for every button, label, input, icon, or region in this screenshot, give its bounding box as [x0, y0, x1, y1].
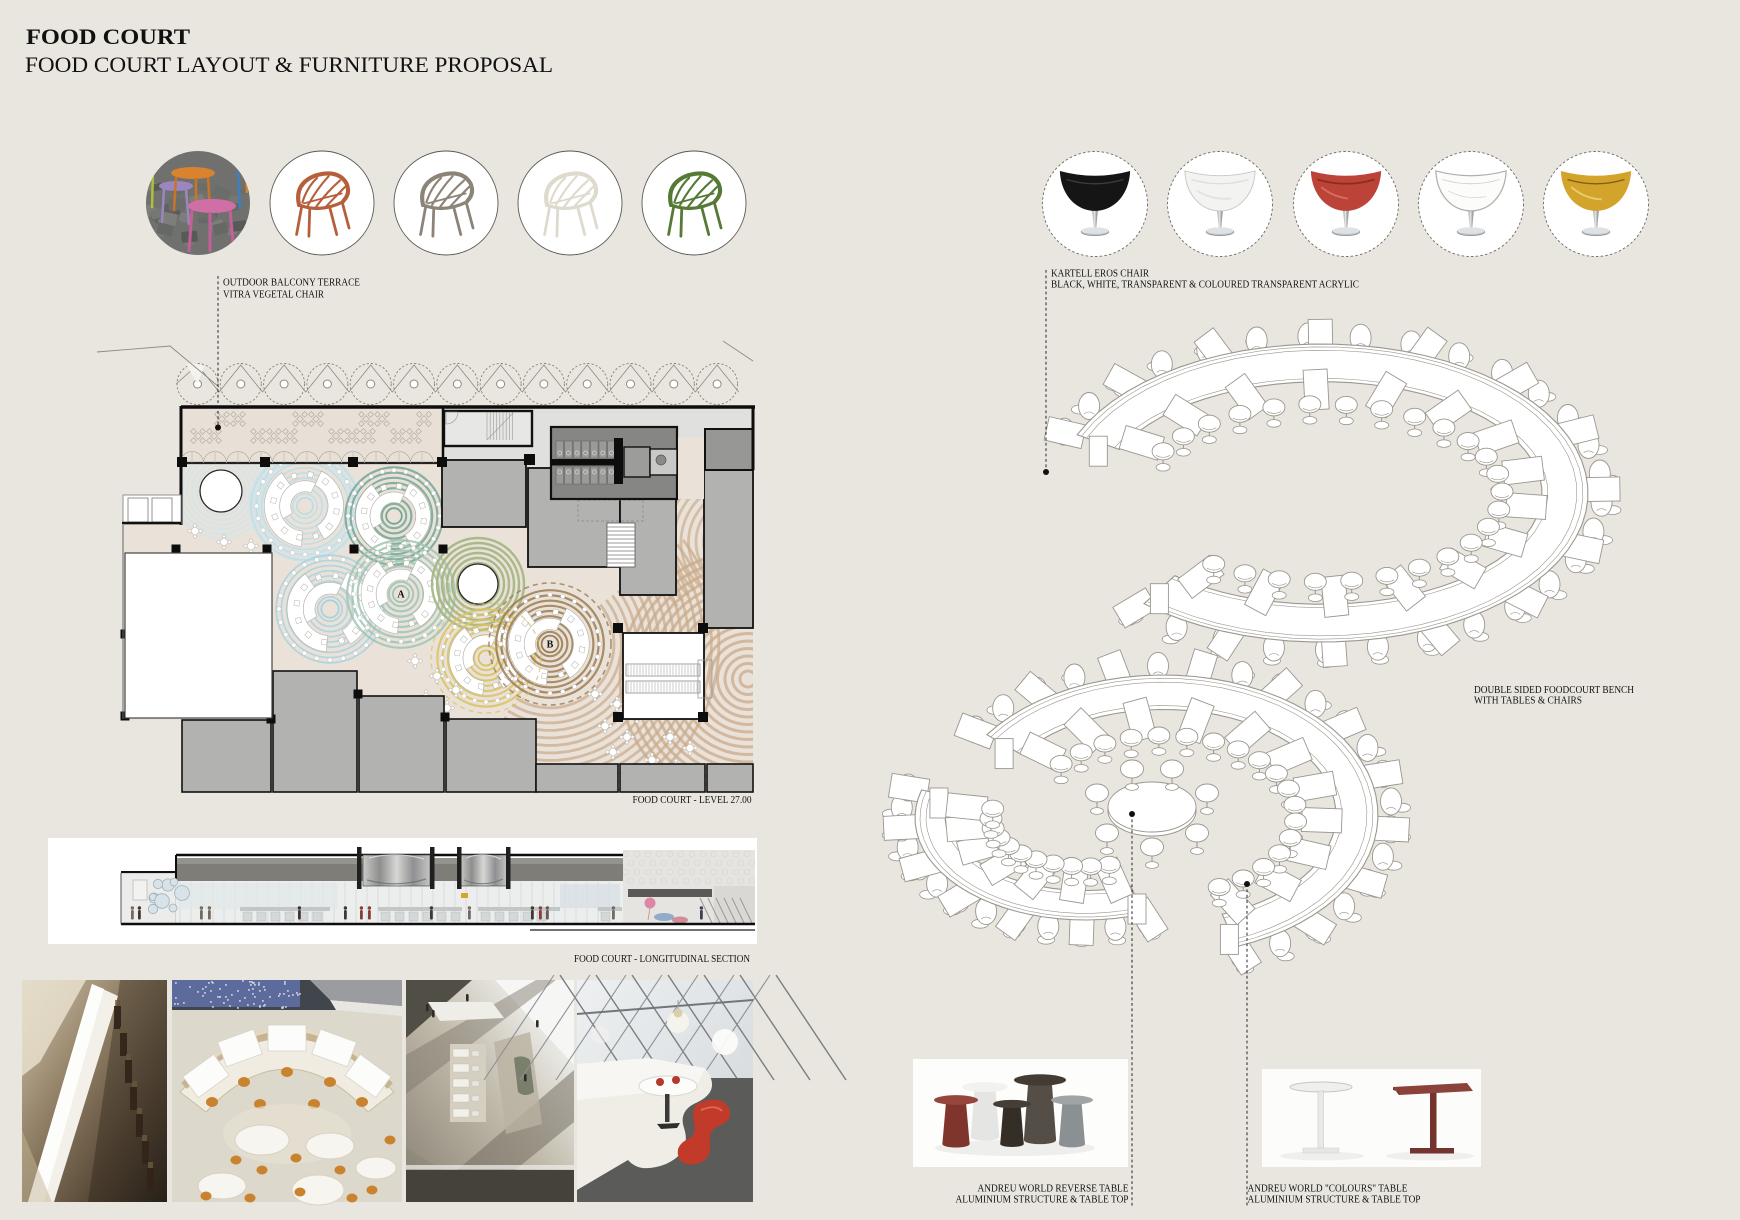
svg-text:FOOD COURT - LEVEL 27.00: FOOD COURT - LEVEL 27.00 — [633, 795, 752, 806]
svg-text:A: A — [397, 590, 405, 601]
svg-text:FOOD COURT - LONGITUDINAL SECT: FOOD COURT - LONGITUDINAL SECTION — [574, 954, 751, 965]
svg-text:VITRA VEGETAL CHAIR: VITRA VEGETAL CHAIR — [223, 290, 324, 301]
svg-text:WITH TABLES & CHAIRS: WITH TABLES & CHAIRS — [1474, 696, 1582, 707]
svg-text:KARTELL EROS CHAIR: KARTELL EROS CHAIR — [1051, 269, 1149, 280]
svg-text:BLACK, WHITE, TRANSPARENT & CO: BLACK, WHITE, TRANSPARENT & COLOURED TRA… — [1051, 280, 1359, 291]
svg-text:OUTDOOR BALCONY TERRACE: OUTDOOR BALCONY TERRACE — [223, 278, 360, 289]
svg-text:ANDREU WORLD REVERSE TABLE: ANDREU WORLD REVERSE TABLE — [978, 1184, 1129, 1195]
svg-text:FOOD COURT LAYOUT & FURNITURE: FOOD COURT LAYOUT & FURNITURE PROPOSAL — [25, 52, 553, 77]
svg-text:ALUMINIUM STRUCTURE & TABLE TO: ALUMINIUM STRUCTURE & TABLE TOP — [1248, 1195, 1421, 1206]
svg-text:ANDREU WORLD "COLOURS" TABLE: ANDREU WORLD "COLOURS" TABLE — [1248, 1184, 1408, 1195]
svg-text:B: B — [547, 640, 554, 651]
svg-text:ALUMINIUM STRUCTURE & TABLE TO: ALUMINIUM STRUCTURE & TABLE TOP — [956, 1195, 1129, 1206]
svg-text:DOUBLE SIDED FOODCOURT BENCH: DOUBLE SIDED FOODCOURT BENCH — [1474, 685, 1635, 696]
svg-text:FOOD COURT: FOOD COURT — [26, 24, 190, 49]
